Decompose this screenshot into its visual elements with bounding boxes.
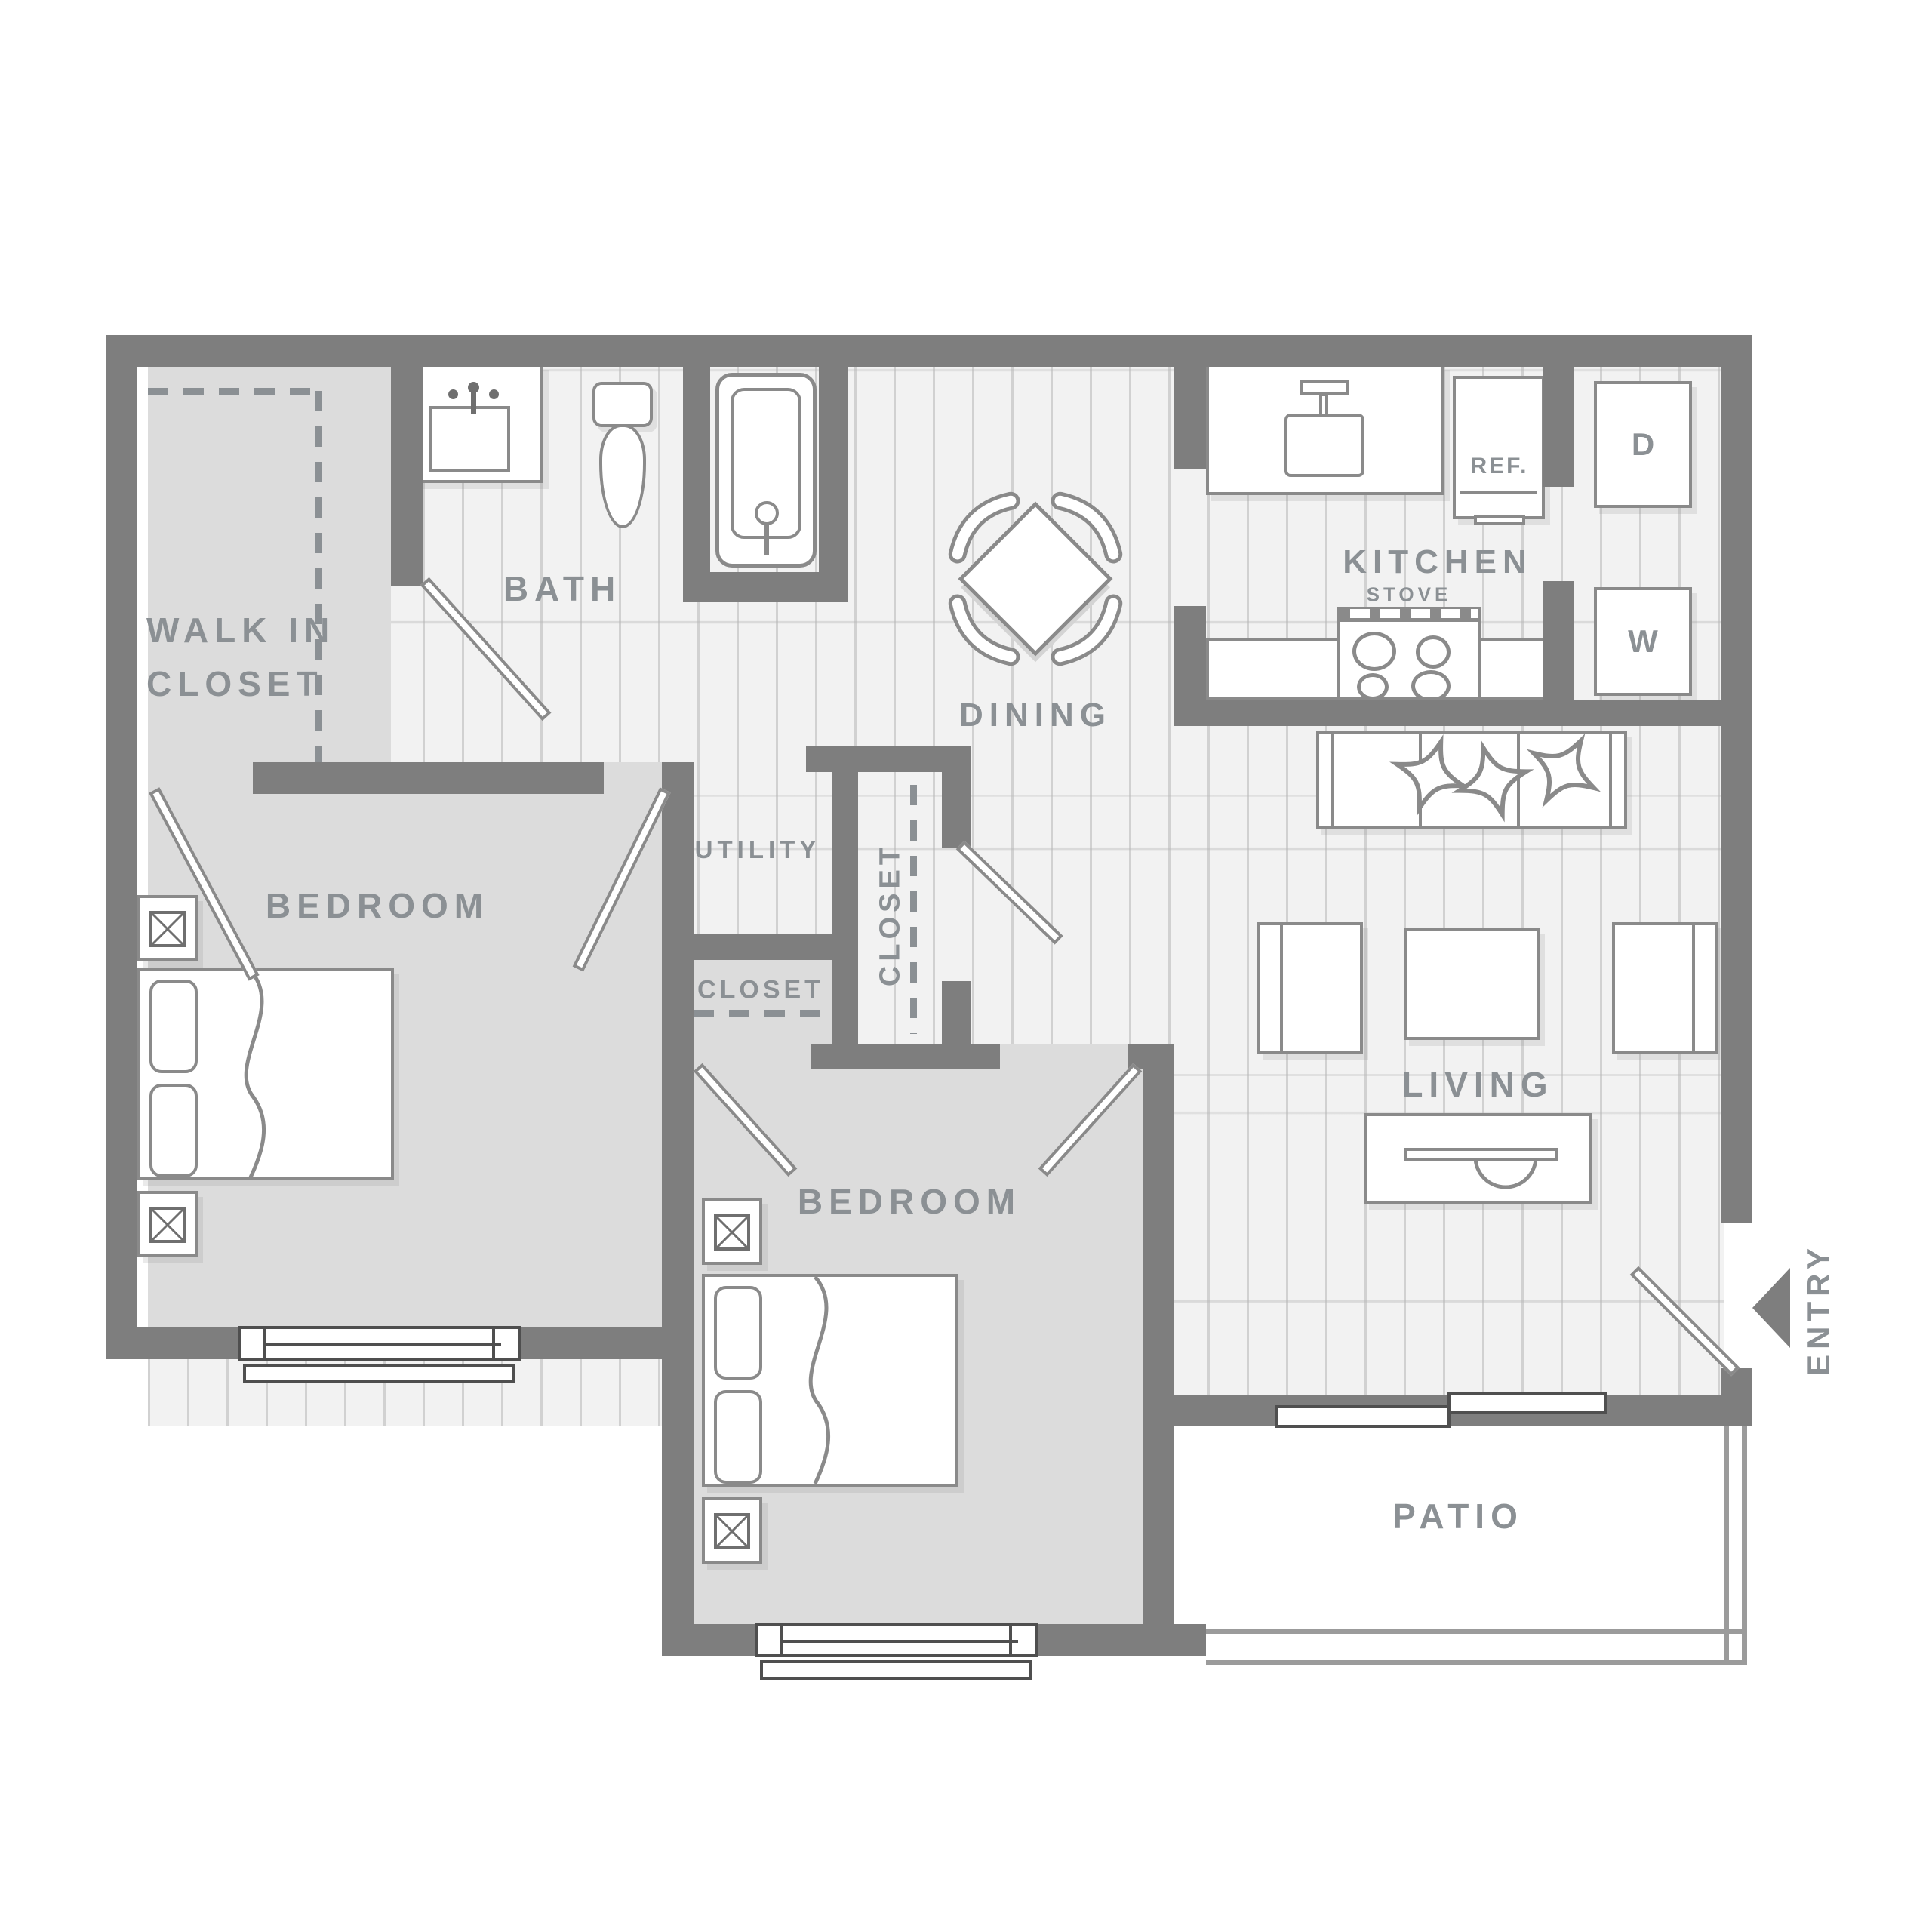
- sliding-door-panel-outer: [1275, 1405, 1451, 1428]
- walk-in-closet-dashed-line-horizontal: [148, 388, 321, 395]
- wall-washer-left-stub: [1543, 581, 1574, 700]
- wall-hall-closet-left: [832, 772, 858, 1044]
- window-sill-bedroom-left: [243, 1364, 515, 1383]
- hall-closet-label: CLOSET: [875, 843, 907, 986]
- wall-outer-right-upper: [1721, 335, 1752, 1223]
- dryer-label: D: [1632, 426, 1654, 463]
- bathtub-drain-icon: [755, 501, 779, 525]
- living-label: LIVING: [1401, 1064, 1553, 1105]
- bedroom-center-label: BEDROOM: [798, 1181, 1021, 1222]
- wall-outer-top: [106, 335, 1752, 367]
- burner-icon: [1416, 635, 1451, 669]
- wall-tub-niche-left: [683, 367, 710, 586]
- bedroom-left-label: BEDROOM: [266, 885, 489, 926]
- patio-border-bottom-outer: [1206, 1660, 1747, 1665]
- patio-label: PATIO: [1392, 1496, 1524, 1537]
- walk-in-closet-label: WALK IN CLOSET: [146, 604, 335, 712]
- wall-hall-closet-right-lower: [942, 981, 971, 1044]
- bathroom-sink-basin: [429, 406, 510, 472]
- washer-label: W: [1628, 623, 1658, 660]
- burner-icon: [1411, 670, 1451, 702]
- utility-label: UTILITY: [695, 835, 821, 864]
- window-bedroom-center: [755, 1623, 1038, 1657]
- wall-utility-bottom: [662, 934, 832, 960]
- burner-icon: [1352, 632, 1396, 671]
- wall-hall-closet-top: [806, 746, 971, 772]
- bath-label: BATH: [503, 568, 621, 609]
- tv-icon: [1364, 1113, 1592, 1204]
- refrigerator-label: REF.: [1470, 454, 1528, 479]
- entry-arrow-icon: [1752, 1268, 1790, 1348]
- burner-icon: [1357, 673, 1389, 700]
- walk-in-closet-label-line2: CLOSET: [146, 657, 335, 711]
- entry-label: ENTRY: [1801, 1243, 1837, 1376]
- nightstand-lamp-icon: [149, 910, 186, 948]
- wall-kitchen-bottom: [1174, 700, 1724, 726]
- bed-blanket-fold-icon: [702, 1274, 958, 1487]
- hall-closet-dashed-line: [910, 785, 917, 1034]
- bed-blanket-fold-icon: [137, 968, 394, 1180]
- coffee-table: [1404, 928, 1540, 1040]
- wall-ref-dryer-divider: [1543, 367, 1574, 487]
- nightstand-lamp-icon: [713, 1214, 751, 1251]
- refrigerator-handle-icon: [1474, 515, 1525, 525]
- nightstand-lamp-icon: [149, 1206, 186, 1244]
- sofa-pillows-icon: [1351, 721, 1638, 841]
- armchair-left: [1257, 922, 1363, 1054]
- dining-label: DINING: [959, 697, 1112, 734]
- bedroom-closet-dashed-line: [694, 1010, 832, 1017]
- kitchen-label: KITCHEN: [1343, 543, 1533, 581]
- toilet-tank-icon: [592, 382, 653, 427]
- floor-plan: REF. D W STOVE: [0, 0, 1932, 1932]
- sliding-door-panel-inner: [1447, 1392, 1607, 1414]
- stove: [1337, 619, 1481, 700]
- stove-label: STOVE: [1367, 583, 1452, 607]
- wall-bath-bottom: [253, 762, 604, 794]
- wall-bath-dining-divider: [819, 367, 848, 602]
- bedroom-closet-label: CLOSET: [697, 976, 824, 1005]
- faucet-dot-left-icon: [448, 389, 458, 399]
- wall-bedroom-center-right: [1143, 1044, 1174, 1656]
- kitchen-faucet-bar-icon: [1300, 380, 1349, 395]
- patio-border-bottom-inner: [1206, 1629, 1747, 1634]
- wall-hall-closet-right-upper: [942, 772, 971, 848]
- wall-bedrooms-divider: [662, 762, 694, 1656]
- window-bedroom-left: [238, 1326, 521, 1361]
- wall-kitchen-peninsula-upper: [1174, 367, 1206, 469]
- walk-in-closet-label-line1: WALK IN: [146, 604, 335, 657]
- dining-table-icon: [928, 453, 1147, 709]
- kitchen-sink-basin: [1284, 414, 1364, 477]
- refrigerator: [1453, 376, 1545, 519]
- faucet-stem-icon: [471, 392, 476, 414]
- armchair-right: [1612, 922, 1718, 1054]
- faucet-dot-right-icon: [489, 389, 499, 399]
- bathtub-drain-stem-icon: [764, 524, 769, 555]
- wall-outer-left: [106, 335, 137, 1359]
- wall-walk-in-closet-right: [391, 367, 423, 586]
- wall-bedroom-center-top: [811, 1044, 1000, 1069]
- window-sill-bedroom-center: [760, 1660, 1032, 1680]
- nightstand-lamp-icon: [713, 1512, 751, 1550]
